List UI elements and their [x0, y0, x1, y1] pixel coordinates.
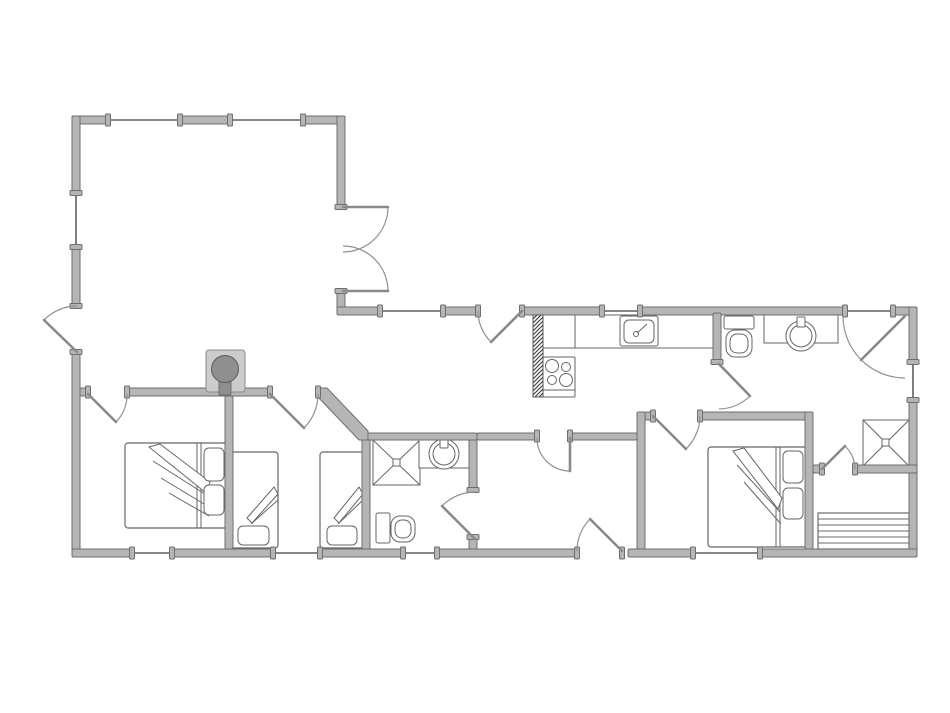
toilet-bowl-inner: [395, 520, 411, 538]
wall-south-d: [437, 549, 577, 557]
window-cap: [435, 547, 440, 559]
window-cap: [843, 305, 848, 317]
wall-bathroom-mid-east-a: [469, 440, 477, 490]
wall-wing-north-a: [337, 307, 380, 315]
door-bathroom-north-post: [711, 360, 723, 365]
floor-plan: [0, 0, 950, 713]
wall-hall-north-a: [477, 433, 537, 440]
wall-east-b: [909, 400, 917, 557]
range-burner-icon: [562, 363, 571, 372]
wall-bedroom3-north: [700, 412, 813, 420]
wall-south-a: [72, 549, 132, 557]
bed-single-right-pillow: [327, 526, 357, 545]
wall-bathroom-mid-west: [362, 433, 370, 549]
wall-bedroom3-west: [637, 412, 645, 549]
wall-south-b: [172, 549, 273, 557]
wall-south-f: [760, 549, 917, 557]
window-cap: [691, 547, 696, 559]
wall-bedroom-divider: [225, 396, 233, 549]
range-burner-icon: [560, 374, 573, 387]
window-cap: [130, 547, 135, 559]
wall-east-a: [909, 307, 917, 362]
wall-wing-north-d: [640, 307, 845, 315]
window-cap: [891, 305, 896, 317]
window-cap: [638, 305, 643, 317]
wall-north-b: [180, 116, 230, 124]
wall-wing-north-c: [522, 307, 602, 315]
window-cap: [758, 547, 763, 559]
toilet-bowl-inner: [730, 334, 748, 353]
window-cap: [106, 114, 111, 126]
window-cap: [441, 305, 446, 317]
washbasin-inner: [790, 325, 812, 347]
wall-bedroom3-east: [805, 412, 813, 549]
wall-bathroom-mid-north: [362, 433, 477, 440]
window-cap: [228, 114, 233, 126]
window-cap: [271, 547, 276, 559]
wall-south-c: [320, 549, 403, 557]
toilet-tank: [724, 316, 754, 329]
shower-drain: [393, 459, 400, 466]
toilet-tank: [376, 513, 390, 543]
wall-interior-bedrooms: [127, 388, 270, 396]
window-cap: [907, 360, 919, 365]
range-burner-icon: [548, 376, 557, 385]
window-cap: [600, 305, 605, 317]
wall-south-e: [628, 549, 693, 557]
bed-double-west-pillow: [204, 448, 224, 481]
range-burner-icon: [546, 360, 559, 373]
window-cap: [378, 305, 383, 317]
wall-west-c: [72, 352, 80, 557]
window-cap: [178, 114, 183, 126]
bed-single-left-pillow: [238, 526, 269, 545]
background: [0, 0, 950, 713]
wall-wing-north-b: [443, 307, 478, 315]
window-cap: [70, 191, 82, 196]
wall-west-b: [72, 247, 80, 306]
window-cap: [301, 114, 306, 126]
chimney-flue: [533, 315, 543, 397]
shower-drain: [882, 439, 889, 446]
wood-stove: [212, 356, 239, 383]
window-cap: [401, 547, 406, 559]
window-cap: [170, 547, 175, 559]
washbasin-tap-icon: [797, 317, 805, 327]
wall-bathroom-north-west: [713, 313, 721, 362]
window-cap: [907, 398, 919, 403]
wall-hall-north-b: [570, 433, 637, 440]
wall-living-east-a: [337, 116, 345, 207]
floor-plan-page: [0, 0, 950, 713]
window-cap: [70, 245, 82, 250]
wall-west-a: [72, 116, 80, 193]
bed-double-east-pillow: [783, 451, 803, 483]
bed-double-east-pillow: [783, 488, 803, 519]
wall-shower-room-south-b: [855, 465, 917, 473]
bed-double-west-pillow: [204, 485, 224, 515]
window-cap: [318, 547, 323, 559]
